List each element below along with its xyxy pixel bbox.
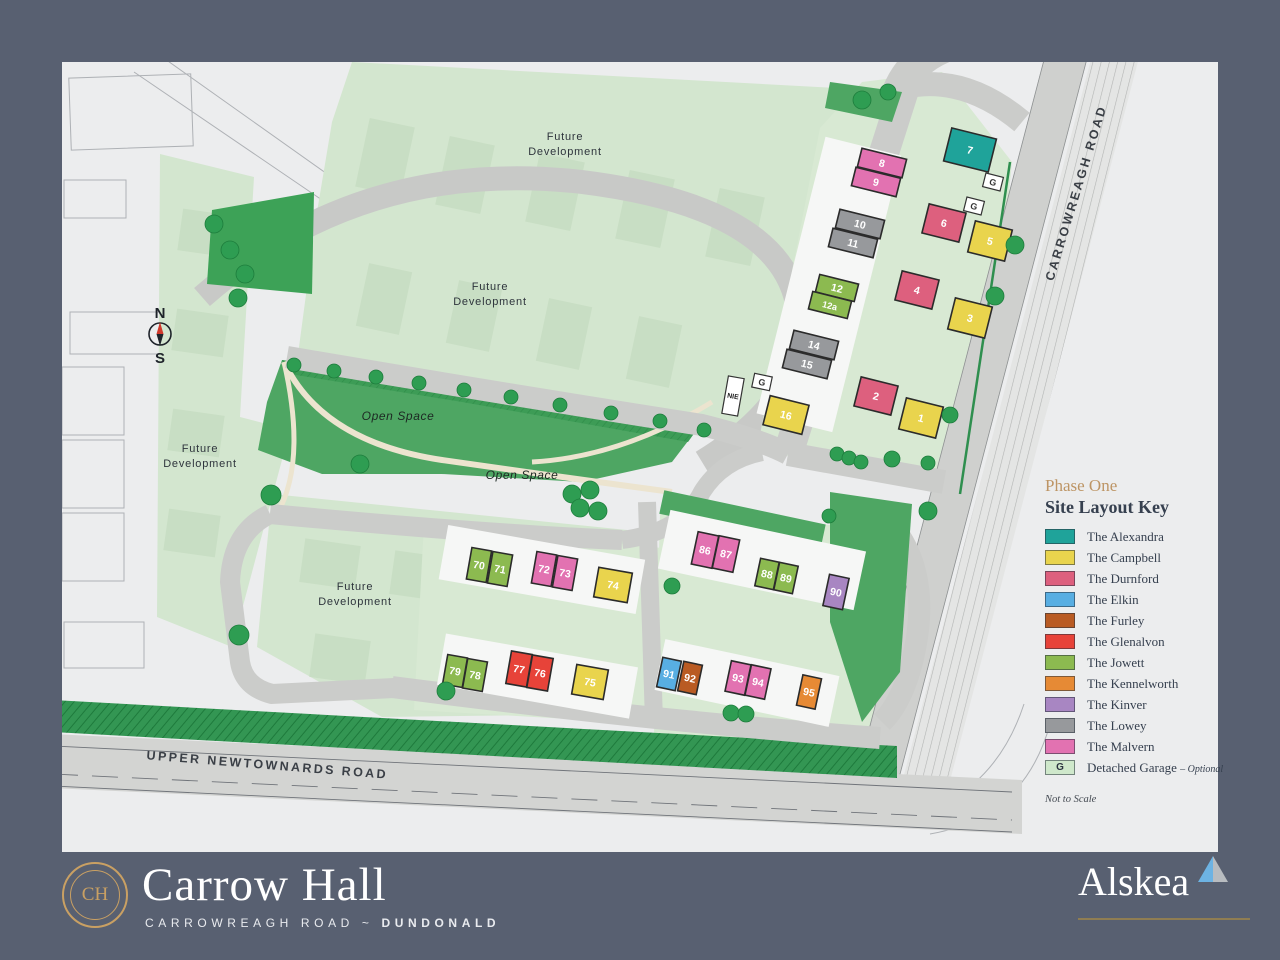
tree-icon <box>921 456 935 470</box>
tree-icon <box>880 84 896 100</box>
plot-number: 73 <box>558 567 572 581</box>
future-development-text: Future <box>182 443 219 455</box>
legend-label: The Lowey <box>1087 718 1147 734</box>
compass-north-label: N <box>155 305 166 322</box>
future-development-text: Future <box>547 131 584 143</box>
tree-icon <box>854 455 868 469</box>
carrow-hall-tagline: CARROWREAGH ROAD ~ DUNDONALD <box>145 916 500 930</box>
tree-icon <box>986 287 1004 305</box>
legend-label: The Furley <box>1087 613 1144 629</box>
garage-box: G <box>752 373 773 390</box>
tree-icon <box>205 215 223 233</box>
tree-icon <box>664 578 680 594</box>
legend-swatch <box>1045 592 1075 607</box>
legend-swatch <box>1045 697 1075 712</box>
open-space-label: Open Space <box>486 468 559 482</box>
plot-number: 71 <box>493 563 507 577</box>
legend-item-garage: G Detached Garage – Optional <box>1045 757 1215 778</box>
tree-icon <box>589 502 607 520</box>
tagline-separator: ~ <box>362 916 374 930</box>
tree-icon <box>351 455 369 473</box>
legend-label: The Malvern <box>1087 739 1155 755</box>
legend-label: The Elkin <box>1087 592 1139 608</box>
plot-number: 70 <box>472 559 486 573</box>
legend-garage-suffix: – Optional <box>1180 764 1223 775</box>
tree-icon <box>437 682 455 700</box>
future-development-text: Development <box>163 458 237 470</box>
plot-number: 76 <box>533 667 547 681</box>
legend-garage-label: Detached Garage – Optional <box>1087 760 1223 776</box>
carrow-hall-crest-icon: CH <box>62 862 128 928</box>
tree-icon <box>738 706 754 722</box>
legend-swatch <box>1045 613 1075 628</box>
legend-label: The Kennelworth <box>1087 676 1178 692</box>
carrow-hall-wordmark: Carrow Hall <box>142 858 387 912</box>
legend-swatch <box>1045 676 1075 691</box>
footer: CH Carrow Hall CARROWREAGH ROAD ~ DUNDON… <box>0 852 1280 960</box>
plot-75: 75 <box>572 664 609 699</box>
tree-icon <box>327 364 341 378</box>
tree-icon <box>723 705 739 721</box>
legend-title: Site Layout Key <box>1045 497 1215 518</box>
site-layout-key: Phase One Site Layout Key The AlexandraT… <box>1045 476 1215 816</box>
legend-item: The Alexandra <box>1045 526 1215 547</box>
legend-phase-title: Phase One <box>1045 476 1215 496</box>
tree-icon <box>457 383 471 397</box>
plot-number: 74 <box>606 579 620 593</box>
tree-icon <box>504 390 518 404</box>
legend-item: The Jowett <box>1045 652 1215 673</box>
legend-items: The AlexandraThe CampbellThe DurnfordThe… <box>1045 526 1215 757</box>
legend-swatch <box>1045 529 1075 544</box>
tree-icon <box>942 407 958 423</box>
legend-swatch <box>1045 571 1075 586</box>
plot-number: 78 <box>468 669 482 683</box>
legend-item: The Kennelworth <box>1045 673 1215 694</box>
not-to-scale-note: Not to Scale <box>1045 794 1215 805</box>
tree-icon <box>604 406 618 420</box>
legend-item: The Furley <box>1045 610 1215 631</box>
crest-monogram: CH <box>70 870 120 920</box>
legend-label: The Kinver <box>1087 697 1147 713</box>
legend-item: The Elkin <box>1045 589 1215 610</box>
legend-label: The Durnford <box>1087 571 1159 587</box>
tagline-town: DUNDONALD <box>381 916 500 930</box>
future-development-text: Development <box>318 596 392 608</box>
alskea-rule <box>1078 918 1250 920</box>
legend-swatch <box>1045 634 1075 649</box>
tree-icon <box>369 370 383 384</box>
tree-icon <box>884 451 900 467</box>
plot-number: 75 <box>583 676 597 690</box>
tree-icon <box>553 398 567 412</box>
tree-icon <box>221 241 239 259</box>
tree-icon <box>229 289 247 307</box>
legend-garage-swatch: G <box>1045 760 1075 775</box>
tree-icon <box>581 481 599 499</box>
future-development-text: Future <box>472 281 509 293</box>
tree-icon <box>236 265 254 283</box>
legend-label: The Glenalvon <box>1087 634 1165 650</box>
alskea-logo: Alskea <box>1078 860 1254 920</box>
page: { "page": {"frame_color":"#586071","map_… <box>0 0 1280 960</box>
tree-icon <box>229 625 249 645</box>
legend-swatch <box>1045 739 1075 754</box>
legend-item: The Malvern <box>1045 736 1215 757</box>
plot-number: 79 <box>448 665 462 679</box>
legend-item: The Durnford <box>1045 568 1215 589</box>
legend-swatch <box>1045 718 1075 733</box>
tree-icon <box>571 499 589 517</box>
legend-item: The Campbell <box>1045 547 1215 568</box>
future-development-text: Development <box>453 296 527 308</box>
tree-icon <box>919 502 937 520</box>
legend-item: The Kinver <box>1045 694 1215 715</box>
legend-label: The Jowett <box>1087 655 1144 671</box>
tree-icon <box>653 414 667 428</box>
tree-icon <box>853 91 871 109</box>
future-development-text: Future <box>337 581 374 593</box>
plot-74: 74 <box>594 567 633 602</box>
plot-number: 72 <box>537 563 551 577</box>
tree-icon <box>412 376 426 390</box>
tree-icon <box>1006 236 1024 254</box>
legend-item: The Lowey <box>1045 715 1215 736</box>
tagline-road: CARROWREAGH ROAD <box>145 916 354 930</box>
legend-item: The Glenalvon <box>1045 631 1215 652</box>
future-development-text: Development <box>528 146 602 158</box>
legend-label: The Campbell <box>1087 550 1161 566</box>
open-space-label: Open Space <box>362 409 435 423</box>
legend-swatch <box>1045 655 1075 670</box>
tree-icon <box>822 509 836 523</box>
legend-swatch <box>1045 550 1075 565</box>
legend-label: The Alexandra <box>1087 529 1164 545</box>
legend-garage-label-text: Detached Garage <box>1087 760 1177 775</box>
tree-icon <box>697 423 711 437</box>
tree-icon <box>287 358 301 372</box>
alskea-triangle-icon <box>1196 854 1230 884</box>
compass-south-label: S <box>155 350 165 367</box>
plot-number: 77 <box>512 663 526 677</box>
tree-icon <box>261 485 281 505</box>
